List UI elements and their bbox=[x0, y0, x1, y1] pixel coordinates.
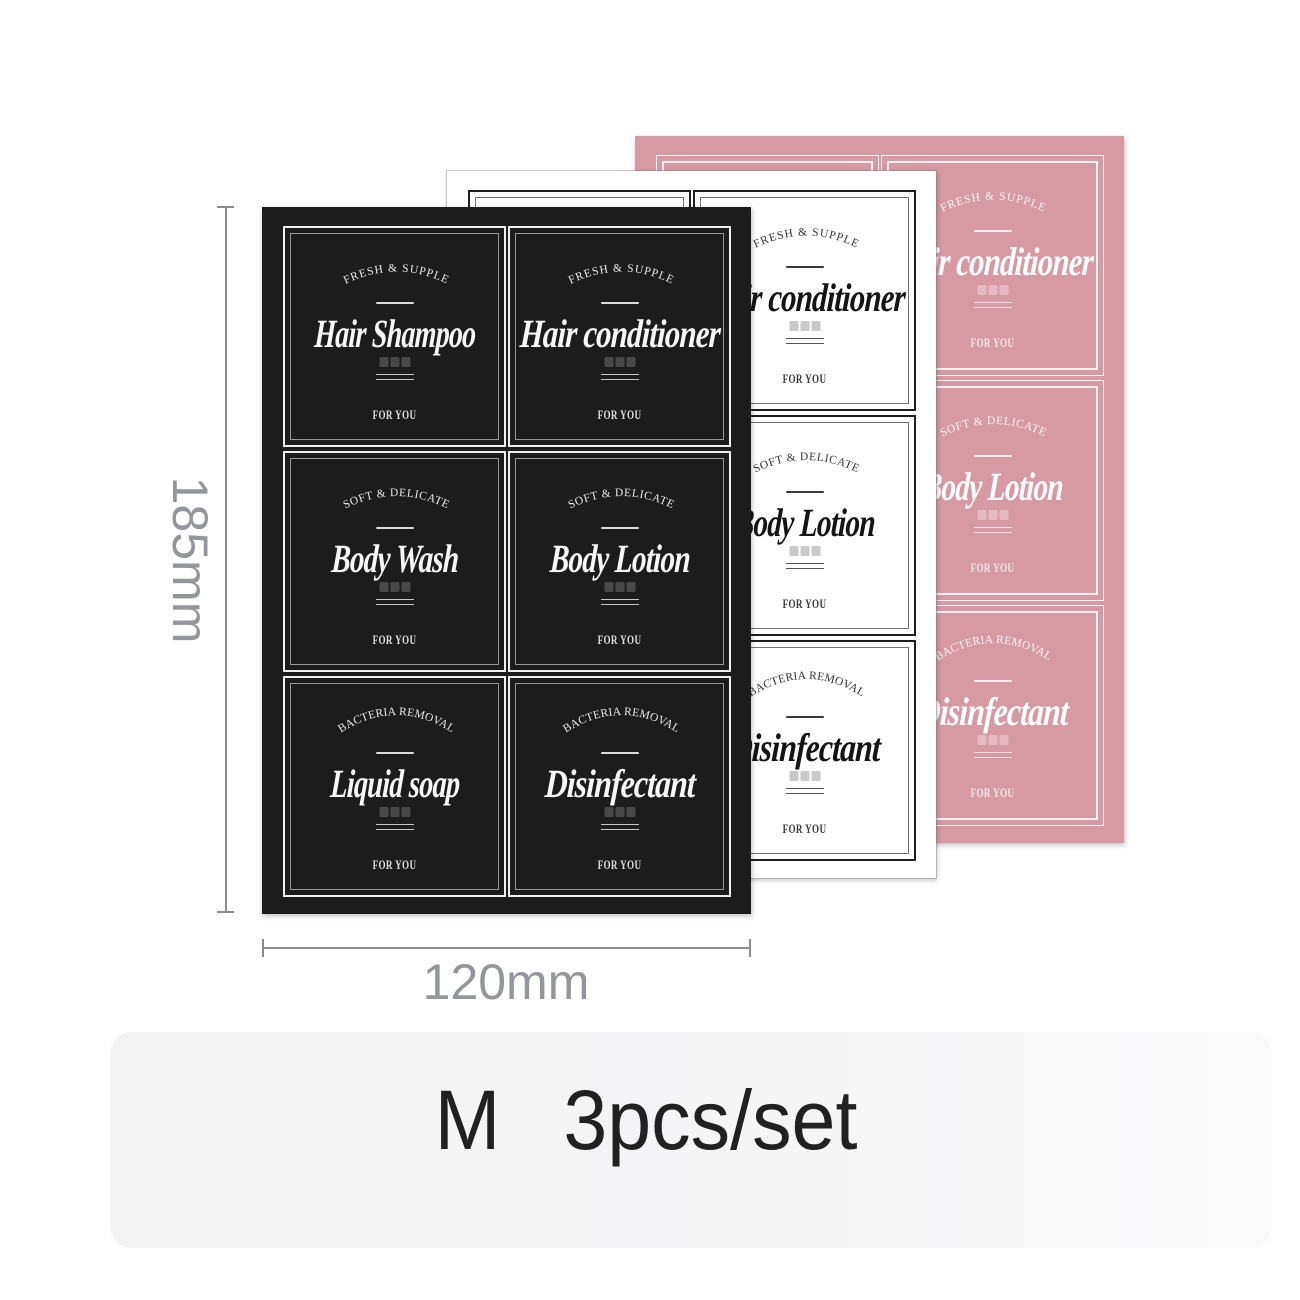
svg-text:BACTERIA REMOVAL: BACTERIA REMOVAL bbox=[561, 706, 682, 735]
svg-text:SOFT & DELICATE: SOFT & DELICATE bbox=[939, 415, 1049, 439]
svg-text:BACTERIA REMOVAL: BACTERIA REMOVAL bbox=[746, 670, 867, 699]
svg-text:SOFT & DELICATE: SOFT & DELICATE bbox=[752, 451, 862, 475]
svg-text:FRESH & SUPPLE: FRESH & SUPPLE bbox=[752, 226, 861, 250]
svg-text:SOFT & DELICATE: SOFT & DELICATE bbox=[342, 487, 452, 511]
svg-text:FRESH & SUPPLE: FRESH & SUPPLE bbox=[342, 262, 451, 286]
svg-text:BACTERIA REMOVAL: BACTERIA REMOVAL bbox=[933, 634, 1054, 663]
svg-text:FRESH & SUPPLE: FRESH & SUPPLE bbox=[567, 262, 676, 286]
svg-text:FRESH & SUPPLE: FRESH & SUPPLE bbox=[939, 190, 1048, 214]
svg-text:BACTERIA REMOVAL: BACTERIA REMOVAL bbox=[336, 706, 457, 735]
svg-text:SOFT & DELICATE: SOFT & DELICATE bbox=[567, 487, 677, 511]
